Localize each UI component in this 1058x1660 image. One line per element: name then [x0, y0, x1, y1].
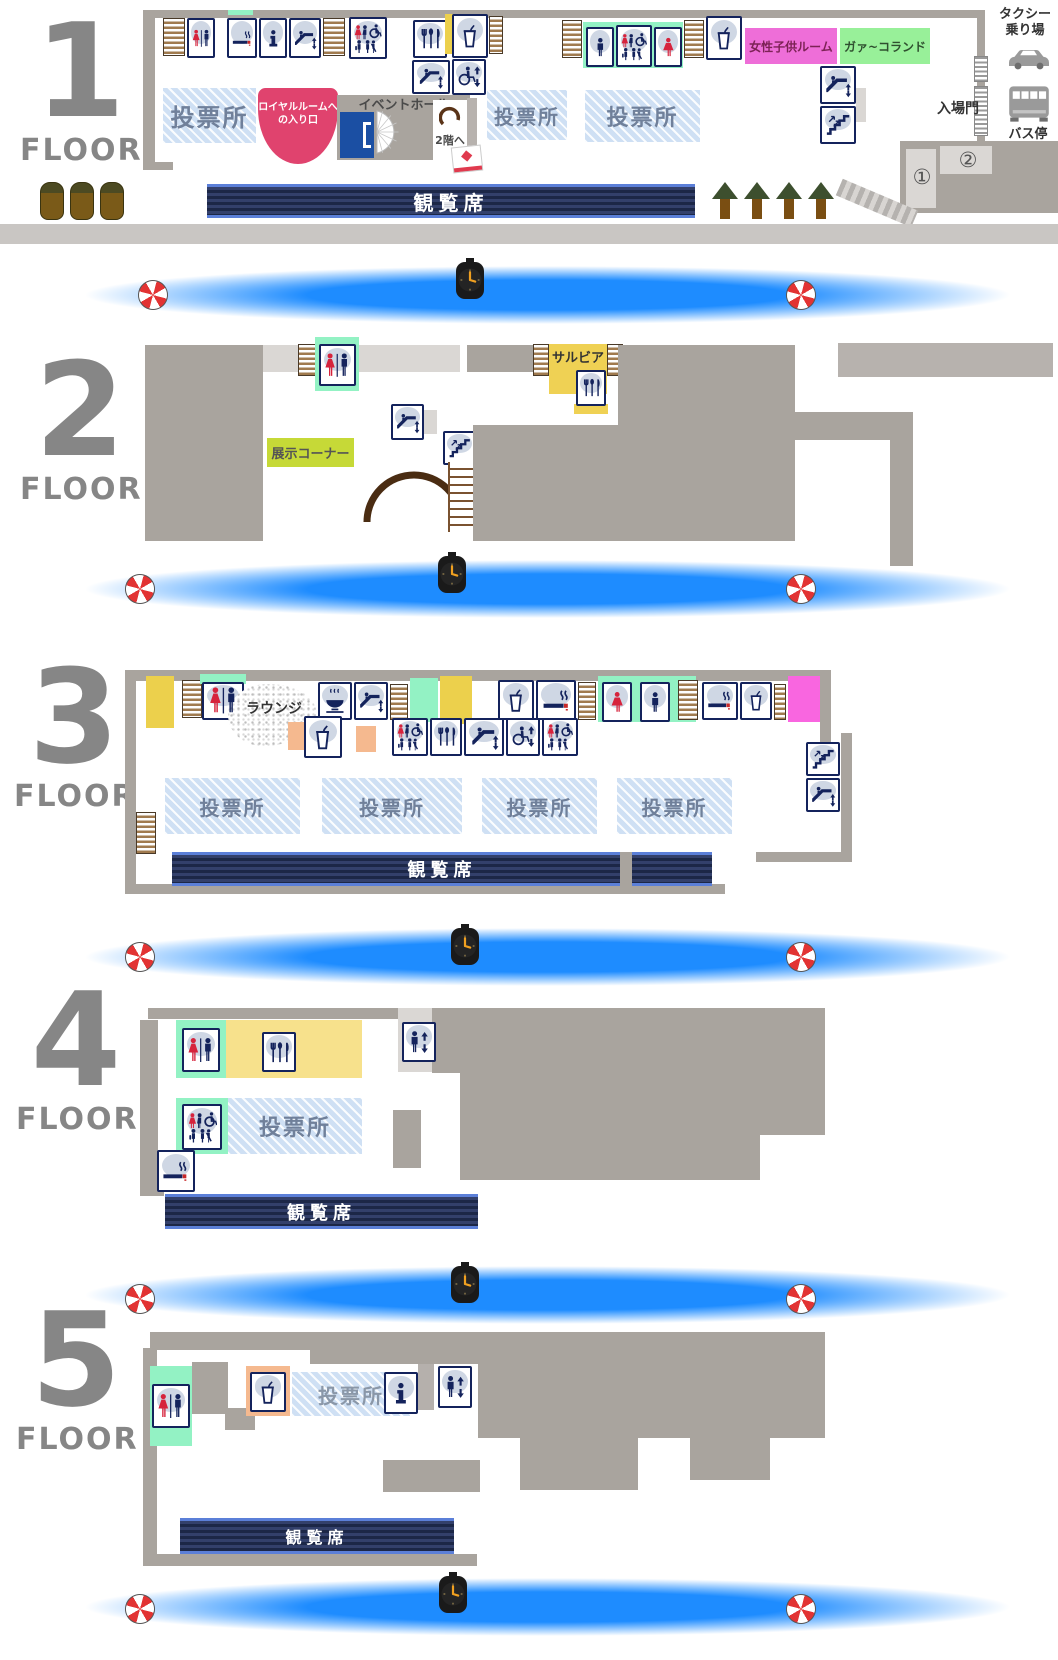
structure: [432, 1008, 760, 1073]
wall: [143, 10, 155, 170]
taxi-icon: [1003, 42, 1055, 70]
taxi-stand-label: タクシー乗り場: [993, 6, 1057, 40]
structure: [760, 1008, 825, 1135]
smoking-icon: [157, 1150, 195, 1192]
escalator-icon: [464, 718, 504, 756]
escalator-icon: [806, 778, 840, 812]
drink-icon: [740, 682, 772, 720]
wheelchair-elevator-icon: [452, 59, 486, 95]
floor-4-label: 4 FLOOR: [16, 975, 136, 1135]
stairs-icon: [806, 742, 840, 776]
stairs-icon: [323, 18, 345, 56]
water-course: [85, 1578, 1010, 1636]
yellow-zone: [440, 676, 472, 724]
escalator-icon: [289, 18, 321, 58]
spiral-stair-icon: [439, 104, 463, 130]
structure: [890, 440, 913, 566]
structure: [473, 425, 795, 541]
wall: [756, 852, 852, 862]
stairs-icon: [820, 106, 856, 144]
stairs-icon: [443, 431, 476, 465]
restroom-icon: [152, 1384, 190, 1428]
tree-icon: [808, 182, 834, 220]
betting-area: 投票所: [585, 90, 700, 142]
restaurant-icon: [430, 718, 462, 756]
womens-restroom-icon: [654, 27, 682, 67]
stairs-icon: [390, 684, 408, 720]
accessible-restroom-icon: [392, 718, 428, 756]
floor-5-number: 5: [16, 1295, 136, 1425]
tree-icon: [70, 182, 94, 220]
escalator-icon: [391, 404, 424, 440]
floor-4-number: 4: [16, 975, 136, 1105]
wall: [418, 1364, 434, 1410]
bus-icon: [1004, 84, 1054, 122]
gate-number-1: ①: [908, 162, 936, 192]
signboard-logo: [461, 150, 472, 161]
floor-3-word: FLOOR: [14, 782, 134, 812]
entrance-gate-icon: [974, 56, 988, 82]
betting-area: 投票所: [228, 1098, 362, 1154]
structure: [520, 1438, 638, 1490]
structure: [192, 1362, 228, 1414]
signboard: [451, 145, 484, 174]
stairs-icon: [678, 680, 698, 720]
wall: [820, 670, 831, 744]
betting-area: 投票所: [482, 778, 597, 834]
structure: [145, 345, 263, 541]
peach-zone: [356, 726, 376, 752]
structure: [263, 345, 460, 372]
floor-map: 1 FLOOR 女性子供ルーム ガァ~コランド 入場門 タクシー乗り場 バス停 …: [0, 0, 1058, 1660]
entrance-gate-label: 入場門: [933, 100, 983, 116]
drink-icon: [706, 16, 742, 60]
elevator-icon: [402, 1022, 436, 1062]
stairs-icon: [136, 812, 156, 854]
restroom-icon: [202, 682, 244, 720]
restaurant-icon: [262, 1032, 296, 1072]
mint-zone: [410, 678, 438, 722]
accessible-restroom-icon: [182, 1104, 222, 1150]
floor-1-number: 1: [20, 6, 140, 136]
betting-area: 投票所: [617, 778, 732, 834]
information-icon: [259, 18, 287, 58]
structure: [690, 1438, 770, 1480]
clock-icon: [438, 1572, 468, 1614]
floor-1-label: 1 FLOOR: [20, 6, 140, 166]
tree-icon: [40, 182, 64, 220]
wall: [620, 852, 632, 886]
seating-area: 観覧席: [207, 184, 695, 218]
floor-2-word: FLOOR: [20, 475, 140, 505]
mint-strip: [228, 10, 253, 15]
stairs-icon: [562, 20, 582, 58]
structure: [478, 1364, 825, 1438]
betting-area: 投票所: [487, 90, 567, 140]
structure: [460, 1073, 760, 1180]
structure: [310, 1332, 825, 1364]
wall: [143, 162, 173, 170]
wall: [140, 1020, 158, 1182]
smoking-icon: [227, 18, 257, 58]
escalator-icon: [354, 682, 388, 720]
wall: [856, 88, 866, 122]
floor-3-number: 3: [14, 652, 134, 782]
tree-icon: [100, 182, 124, 220]
mens-restroom-icon: [640, 682, 670, 722]
restroom-icon: [187, 18, 215, 58]
floor-2-number: 2: [20, 345, 140, 475]
stairs-icon: [533, 344, 549, 376]
wall: [143, 10, 985, 18]
wall: [125, 670, 136, 894]
accessible-restroom-icon: [349, 17, 387, 59]
accessible-restroom-icon: [616, 25, 652, 67]
stairs-icon: [684, 20, 704, 58]
clock-icon: [437, 552, 467, 594]
tree-icon: [712, 182, 738, 220]
betting-area: 投票所: [165, 778, 300, 834]
water-course: [85, 1266, 1010, 1324]
restroom-icon: [319, 344, 356, 386]
floor-5-label: 5 FLOOR: [16, 1295, 136, 1455]
escalator-icon: [412, 60, 450, 94]
restaurant-icon: [576, 370, 606, 406]
restroom-icon: [182, 1028, 220, 1072]
peach-zone: [288, 722, 304, 750]
women-children-room: 女性子供ルーム: [745, 28, 837, 64]
floor-3-label: 3 FLOOR: [14, 652, 134, 812]
accessible-restroom-icon: [542, 718, 578, 756]
wall: [841, 733, 852, 862]
water-course: [85, 928, 1010, 986]
floor-2-label: 2 FLOOR: [20, 345, 140, 505]
lounge-label: ラウンジ: [240, 700, 308, 716]
gaako-land: ガァ~コランド: [840, 28, 930, 64]
signboard-bar: [454, 165, 482, 172]
exhibition-corner: 展示コーナー: [267, 438, 354, 467]
smoking-icon: [702, 682, 738, 720]
yellow-zone: [146, 676, 174, 728]
stairs-icon: [489, 16, 503, 54]
event-hall-fan: [376, 106, 408, 158]
road: [0, 224, 1058, 244]
structure: [467, 345, 535, 372]
stage-bracket: [363, 122, 371, 148]
elevator-icon: [438, 1366, 472, 1408]
seating-area: 観覧席: [165, 1194, 478, 1229]
wall: [148, 1008, 438, 1019]
clock-icon: [450, 924, 480, 966]
betting-area: 投票所: [322, 778, 462, 834]
pillar: [393, 1110, 421, 1168]
water-course: [85, 266, 1010, 324]
clock-icon: [450, 1262, 480, 1304]
information-icon: [384, 1372, 418, 1414]
stairs-icon: [163, 18, 185, 56]
wheelchair-elevator-icon: [506, 718, 540, 756]
seating-area: 観覧席: [180, 1518, 454, 1554]
hot-food-icon: [318, 682, 352, 720]
restaurant-icon: [413, 20, 447, 58]
structure: [838, 343, 1053, 377]
stairs-icon: [182, 680, 202, 718]
royal-room-entrance: ロイヤルルームへの入り口: [258, 88, 338, 164]
water-course: [85, 560, 1010, 618]
mens-restroom-icon: [586, 27, 614, 67]
wall: [424, 410, 437, 434]
structure: [383, 1460, 480, 1492]
drink-icon: [498, 680, 534, 720]
clock-icon: [455, 258, 485, 300]
betting-area: 投票所: [163, 88, 256, 143]
stairs-icon: [578, 682, 596, 720]
escalator-icon: [820, 66, 856, 104]
structure: [618, 345, 795, 427]
to-2f-label: 2階へ: [428, 133, 472, 147]
bus-stop-label: バス停: [996, 124, 1058, 140]
smoking-icon: [536, 680, 576, 720]
womens-restroom-icon: [602, 682, 632, 722]
drink-icon: [452, 14, 488, 58]
floor-4-word: FLOOR: [16, 1105, 136, 1135]
drink-icon: [250, 1372, 286, 1412]
gate-number-2: ②: [954, 146, 982, 174]
floor-5-word: FLOOR: [16, 1425, 136, 1455]
wall: [150, 1332, 310, 1350]
stairs-icon: [774, 684, 786, 720]
structure: [795, 412, 913, 440]
magenta-zone: [788, 676, 820, 722]
drink-icon: [304, 716, 342, 758]
tree-icon: [744, 182, 770, 220]
wall: [143, 1554, 477, 1566]
tree-icon: [776, 182, 802, 220]
floor-1-word: FLOOR: [20, 136, 140, 166]
